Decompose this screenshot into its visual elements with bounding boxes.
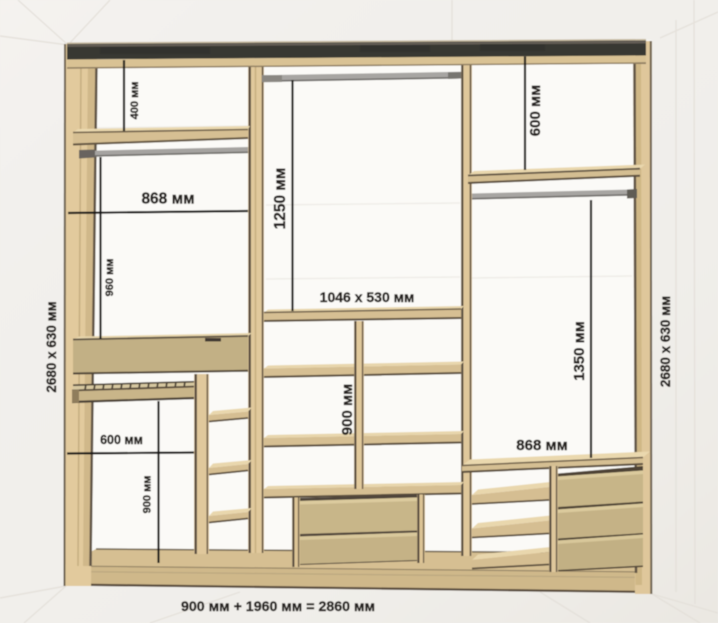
- svg-text:960 мм: 960 мм: [104, 259, 116, 297]
- svg-text:900 мм + 1960 мм = 2860 мм: 900 мм + 1960 мм = 2860 мм: [181, 599, 375, 615]
- svg-text:868 мм: 868 мм: [516, 437, 567, 454]
- svg-text:600 мм: 600 мм: [527, 85, 544, 136]
- svg-text:2680 x 630 мм: 2680 x 630 мм: [44, 301, 59, 392]
- svg-text:600 мм: 600 мм: [100, 433, 143, 447]
- svg-text:1350 мм: 1350 мм: [571, 321, 588, 381]
- svg-text:868 мм: 868 мм: [141, 191, 194, 208]
- svg-text:2680 x 630 мм: 2680 x 630 мм: [658, 296, 673, 387]
- svg-text:900 мм: 900 мм: [142, 476, 154, 514]
- svg-text:1250 мм: 1250 мм: [272, 168, 289, 230]
- svg-text:900 мм: 900 мм: [339, 384, 356, 435]
- svg-text:1046 x 530 мм: 1046 x 530 мм: [320, 289, 415, 305]
- svg-text:400 мм: 400 мм: [129, 82, 141, 120]
